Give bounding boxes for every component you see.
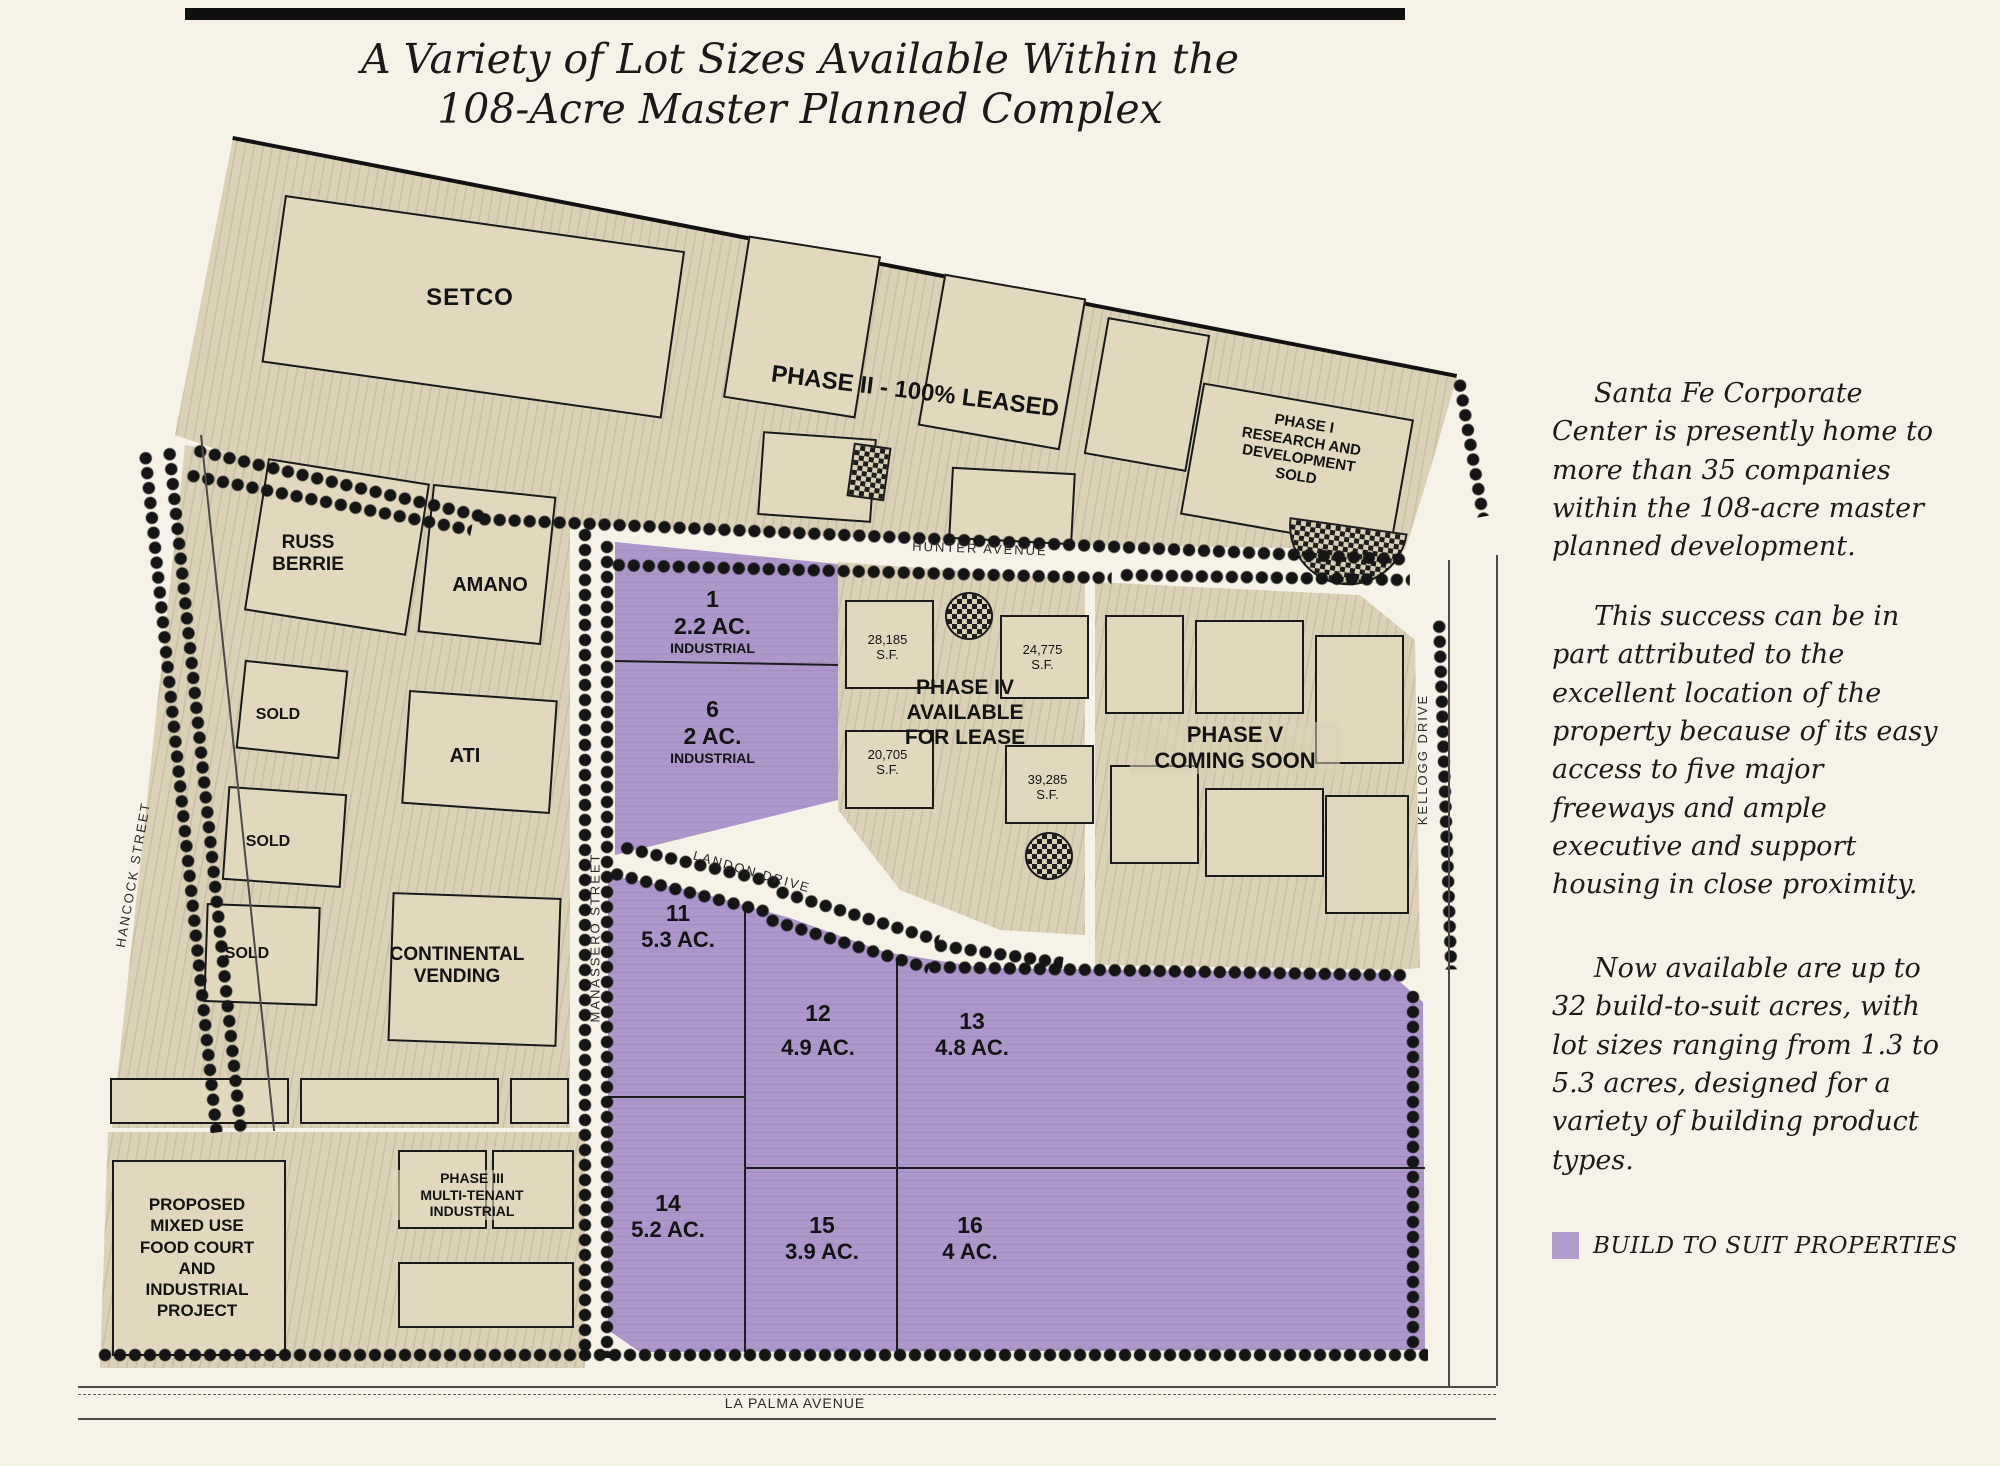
- phase2-plaza-ornament: [846, 443, 891, 502]
- lot-16-label: 16 4 AC.: [900, 1212, 1040, 1265]
- phase4-sf-20705: 20,705 S.F.: [845, 747, 930, 778]
- lot-1-number: 1: [640, 586, 785, 613]
- trees-purple-east-edge: [1406, 990, 1421, 1350]
- sf-unit: S.F.: [845, 647, 930, 662]
- lot-13-size: 4.8 AC.: [902, 1035, 1042, 1061]
- lot-6-label: 6 2 AC. INDUSTRIAL: [640, 696, 785, 767]
- page-title: A Variety of Lot Sizes Available Within …: [280, 34, 1320, 134]
- lot-15-size: 3.9 AC.: [752, 1239, 892, 1265]
- sf-unit: S.F.: [1000, 657, 1085, 672]
- lots-12-13-15-16-divider: [745, 1167, 1425, 1169]
- phase4-sf-28185: 28,185 S.F.: [845, 632, 930, 663]
- phase4-title-line1: PHASE IV: [875, 676, 1055, 701]
- strip-building-1: [110, 1078, 289, 1124]
- sf-value: 39,285: [1005, 772, 1090, 787]
- legend-build-to-suit: BUILD TO SUIT PROPERTIES: [1552, 1232, 1958, 1259]
- amano-label: AMANO: [425, 574, 555, 598]
- strip-building-2: [300, 1078, 499, 1124]
- phase4-sf-39285: 39,285 S.F.: [1005, 772, 1090, 803]
- top-rule: [185, 8, 1405, 20]
- lot-12-number: 12: [748, 1000, 888, 1027]
- phase5-building-5: [1205, 788, 1324, 877]
- brochure-page: A Variety of Lot Sizes Available Within …: [0, 0, 2000, 1466]
- la-palma-road-line-north: [78, 1386, 1496, 1388]
- trees-northband-east-edge: [1452, 377, 1491, 517]
- phase5-building-1: [1105, 615, 1184, 714]
- phase4-sf-24775: 24,775 S.F.: [1000, 642, 1085, 673]
- russ-berrie-label: RUSS BERRIE: [238, 532, 378, 577]
- lot-16-size: 4 AC.: [900, 1239, 1040, 1265]
- lot-13-label: 13 4.8 AC.: [902, 1008, 1042, 1061]
- la-palma-road-line-south: [78, 1418, 1496, 1420]
- kellogg-road-line-east: [1496, 555, 1498, 1386]
- phase4-title: PHASE IV AVAILABLE FOR LEASE: [875, 676, 1055, 750]
- lot-1-type: INDUSTRIAL: [640, 640, 785, 657]
- proposed-line6: PROJECT: [112, 1300, 282, 1321]
- sf-unit: S.F.: [845, 762, 930, 777]
- lot11-lot14-divider: [608, 1096, 745, 1098]
- lot-6-type: INDUSTRIAL: [640, 750, 785, 767]
- street-label-kellogg: KELLOGG DRIVE: [1415, 667, 1430, 852]
- ati-label: ATI: [405, 745, 525, 769]
- lot-12-label: 12 4.9 AC.: [748, 1000, 888, 1061]
- phase3-label: PHASE III MULTI-TENANT INDUSTRIAL: [392, 1170, 552, 1220]
- continental-line2: VENDING: [382, 966, 532, 988]
- kellogg-road-line-west: [1448, 560, 1450, 1386]
- proposed-line3: FOOD COURT: [112, 1237, 282, 1258]
- lot-1-size: 2.2 AC.: [640, 613, 785, 640]
- phase4-title-line3: FOR LEASE: [875, 726, 1055, 751]
- russ-berrie-line2: BERRIE: [238, 554, 378, 576]
- phase4-circle-ornament-bottom: [1025, 832, 1073, 880]
- lot-15-number: 15: [752, 1212, 892, 1239]
- phase5-building-2: [1195, 620, 1304, 714]
- continental-line1: CONTINENTAL: [382, 944, 532, 966]
- phase4-title-line2: AVAILABLE: [875, 701, 1055, 726]
- sidebar-paragraph-2: This success can be in part attributed t…: [1552, 598, 1952, 905]
- phase3-line1: PHASE III: [392, 1170, 552, 1187]
- proposed-line5: INDUSTRIAL: [112, 1279, 282, 1300]
- lot-14-label: 14 5.2 AC.: [598, 1190, 738, 1243]
- trees-la-palma: [98, 1348, 1428, 1363]
- lot-11-size: 5.3 AC.: [608, 927, 748, 953]
- russ-berrie-line1: RUSS: [238, 532, 378, 554]
- phase3-line2: MULTI-TENANT: [392, 1187, 552, 1204]
- lot12-lot13-divider: [896, 958, 898, 1350]
- proposed-line2: MIXED USE: [112, 1215, 282, 1236]
- phase4-circle-ornament-top: [945, 592, 993, 640]
- page-title-line1: A Variety of Lot Sizes Available Within …: [280, 34, 1320, 84]
- sf-value: 28,185: [845, 632, 930, 647]
- sold-label-a: SOLD: [233, 706, 323, 725]
- street-label-la-palma: LA PALMA AVENUE: [700, 1395, 890, 1411]
- strip-building-3: [510, 1078, 569, 1124]
- trees-phase5-east-edge: [1432, 619, 1459, 969]
- sold-label-b: SOLD: [223, 833, 313, 852]
- lot-14-size: 5.2 AC.: [598, 1217, 738, 1243]
- lot-1-label: 1 2.2 AC. INDUSTRIAL: [640, 586, 785, 657]
- phase5-building-4: [1110, 765, 1199, 864]
- continental-vending-label: CONTINENTAL VENDING: [382, 944, 532, 989]
- lot-14-number: 14: [598, 1190, 738, 1217]
- lot-13-number: 13: [902, 1008, 1042, 1035]
- phase5-line2: COMING SOON: [1130, 748, 1340, 774]
- lot-15-label: 15 3.9 AC.: [752, 1212, 892, 1265]
- setco-label: SETCO: [390, 284, 550, 312]
- legend-color-swatch: [1552, 1232, 1579, 1259]
- phase3-line3: INDUSTRIAL: [392, 1203, 552, 1220]
- proposed-mixed-use-label: PROPOSED MIXED USE FOOD COURT AND INDUST…: [112, 1194, 282, 1322]
- lot-6-number: 6: [640, 696, 785, 723]
- lot-6-size: 2 AC.: [640, 723, 785, 750]
- street-label-manassero: MANASSERO STREET: [588, 848, 603, 1028]
- page-title-line2: 108-Acre Master Planned Complex: [280, 84, 1320, 134]
- sf-value: 24,775: [1000, 642, 1085, 657]
- lot11-lot12-divider: [744, 905, 746, 1352]
- sidebar-paragraph-1: Santa Fe Corporate Center is presently h…: [1552, 375, 1952, 567]
- phase5-label: PHASE V COMING SOON: [1130, 722, 1340, 774]
- legend-label: BUILD TO SUIT PROPERTIES: [1593, 1233, 1958, 1259]
- sidebar-paragraph-3: Now available are up to 32 build-to-suit…: [1552, 950, 1952, 1180]
- lot-16-number: 16: [900, 1212, 1040, 1239]
- phase5-line1: PHASE V: [1130, 722, 1340, 748]
- phase5-building-6: [1325, 795, 1409, 914]
- phase3-building-3: [398, 1262, 574, 1328]
- lot-12-size: 4.9 AC.: [748, 1035, 888, 1061]
- sf-unit: S.F.: [1005, 787, 1090, 802]
- proposed-line4: AND: [112, 1258, 282, 1279]
- proposed-line1: PROPOSED: [112, 1194, 282, 1215]
